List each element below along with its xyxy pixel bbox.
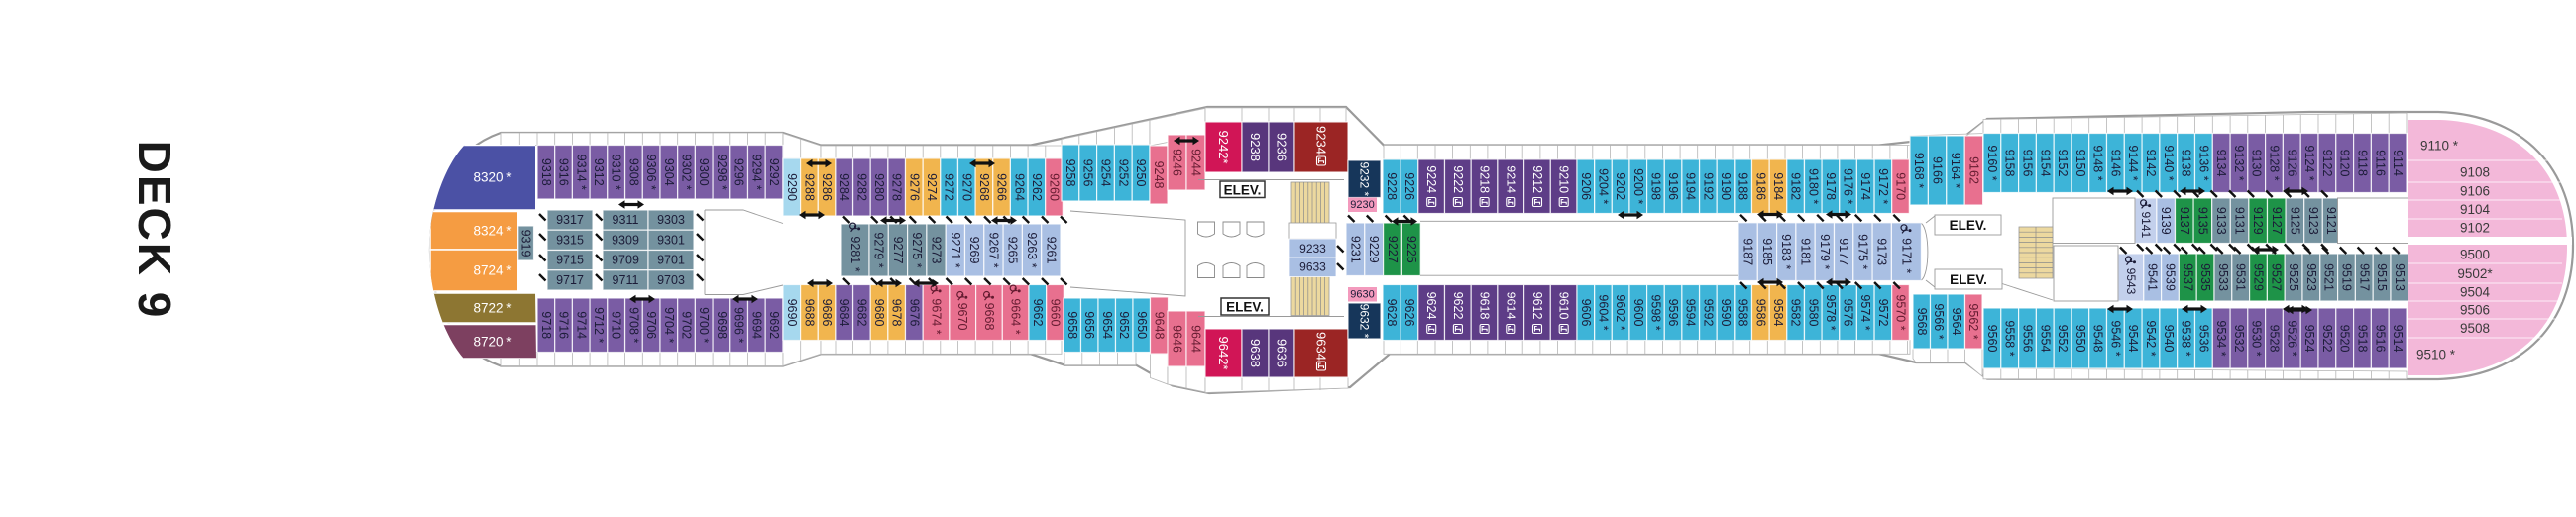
svg-text:9268: 9268 — [977, 173, 991, 201]
svg-text:9126: 9126 — [2285, 150, 2298, 177]
svg-text:9276: 9276 — [907, 173, 921, 201]
svg-text:9716: 9716 — [557, 311, 571, 339]
svg-text:9530 *: 9530 * — [2250, 320, 2264, 356]
svg-text:9168 *: 9168 * — [1912, 153, 1926, 188]
svg-text:9174: 9174 — [1858, 172, 1872, 200]
svg-text:9568: 9568 — [1915, 308, 1929, 336]
svg-text:9516: 9516 — [2373, 325, 2387, 353]
svg-text:9317: 9317 — [556, 213, 584, 227]
svg-text:9684: 9684 — [838, 299, 851, 327]
svg-text:9179 *: 9179 * — [1818, 234, 1832, 269]
svg-text:9543: 9543 — [2124, 268, 2138, 295]
svg-text:9562 *: 9562 * — [1966, 303, 1980, 339]
svg-text:9123: 9123 — [2306, 207, 2320, 235]
svg-text:9290: 9290 — [785, 173, 799, 201]
svg-text:9525: 9525 — [2287, 263, 2300, 291]
svg-text:9198: 9198 — [1648, 172, 1662, 200]
svg-text:9517: 9517 — [2357, 263, 2371, 291]
svg-text:9626: 9626 — [1402, 299, 1416, 327]
svg-text:9600: 9600 — [1631, 299, 1645, 327]
svg-text:9304: 9304 — [662, 158, 676, 186]
svg-text:9566 *: 9566 * — [1932, 303, 1946, 339]
svg-text:9134: 9134 — [2214, 150, 2228, 177]
svg-text:9680: 9680 — [872, 299, 886, 327]
svg-text:9546 *: 9546 * — [2108, 320, 2122, 356]
svg-text:9192: 9192 — [1701, 172, 1715, 200]
svg-text:9712 *: 9712 * — [592, 307, 606, 343]
svg-text:9162: 9162 — [1966, 156, 1980, 184]
svg-text:9660: 9660 — [1049, 299, 1063, 327]
svg-text:9118: 9118 — [2356, 150, 2370, 176]
svg-text:9132 *: 9132 * — [2232, 145, 2246, 180]
svg-text:9636: 9636 — [1275, 339, 1289, 367]
svg-text:9246: 9246 — [1171, 149, 1184, 176]
svg-text:9711: 9711 — [613, 273, 639, 287]
svg-text:9148 *: 9148 * — [2091, 145, 2105, 180]
svg-text:9710: 9710 — [610, 311, 623, 339]
svg-text:9303: 9303 — [657, 213, 685, 227]
svg-text:9182: 9182 — [1789, 172, 1803, 200]
svg-text:9266: 9266 — [995, 173, 1009, 201]
svg-text:9552: 9552 — [2056, 325, 2070, 353]
svg-text:8320 *: 8320 * — [473, 170, 512, 185]
svg-text:9718: 9718 — [539, 311, 553, 339]
svg-text:9527: 9527 — [2269, 263, 2283, 291]
svg-text:9703: 9703 — [657, 273, 685, 287]
svg-text:9708 *: 9708 * — [626, 307, 640, 343]
svg-text:9632 *: 9632 * — [1358, 304, 1372, 339]
svg-text:9200 *: 9200 * — [1631, 168, 1645, 204]
svg-text:ELEV.: ELEV. — [1226, 300, 1264, 315]
svg-text:9122: 9122 — [2320, 150, 2334, 177]
svg-text:9520: 9520 — [2338, 325, 2352, 353]
svg-text:9296: 9296 — [732, 158, 746, 186]
svg-text:9160 *: 9160 * — [1985, 145, 1999, 180]
svg-text:9284: 9284 — [838, 173, 851, 201]
svg-text:9614: 9614 — [1504, 292, 1517, 320]
svg-text:9281 *: 9281 * — [848, 236, 862, 271]
svg-text:9136 *: 9136 * — [2196, 145, 2210, 180]
svg-text:9222: 9222 — [1451, 165, 1465, 193]
svg-text:9668: 9668 — [982, 303, 996, 331]
svg-text:9628: 9628 — [1385, 299, 1399, 327]
svg-text:9142: 9142 — [2144, 150, 2158, 177]
svg-text:9196: 9196 — [1666, 172, 1680, 200]
svg-text:9538 *: 9538 * — [2180, 320, 2193, 356]
svg-text:9144 *: 9144 * — [2126, 145, 2140, 180]
svg-text:9306 *: 9306 * — [644, 155, 658, 190]
svg-text:9630: 9630 — [1350, 288, 1374, 300]
svg-text:9294 *: 9294 * — [749, 155, 763, 190]
svg-text:9500: 9500 — [2460, 248, 2490, 262]
svg-text:9688: 9688 — [803, 299, 817, 327]
svg-text:8724 *: 8724 * — [473, 263, 512, 278]
svg-text:9301: 9301 — [657, 233, 685, 247]
svg-text:9275 *: 9275 * — [910, 232, 924, 267]
svg-text:9131: 9131 — [2233, 207, 2247, 235]
svg-text:9298 *: 9298 * — [715, 155, 728, 190]
svg-text:9706: 9706 — [644, 311, 658, 339]
svg-text:9258: 9258 — [1064, 159, 1077, 187]
svg-text:9212: 9212 — [1530, 165, 1544, 193]
svg-text:9311: 9311 — [613, 213, 639, 227]
svg-text:9588: 9588 — [1736, 299, 1750, 327]
svg-text:9274: 9274 — [925, 173, 939, 201]
svg-text:9226: 9226 — [1402, 172, 1416, 200]
svg-text:9265: 9265 — [1006, 237, 1020, 264]
svg-text:9256: 9256 — [1081, 159, 1095, 187]
svg-text:9140 *: 9140 * — [2162, 145, 2176, 180]
svg-text:9318: 9318 — [539, 158, 553, 186]
svg-text:9514: 9514 — [2391, 325, 2405, 353]
svg-text:9190: 9190 — [1719, 172, 1733, 200]
svg-text:8720 *: 8720 * — [473, 334, 512, 349]
svg-text:9286: 9286 — [820, 173, 834, 201]
svg-text:9236: 9236 — [1275, 133, 1289, 161]
svg-text:9602 *: 9602 * — [1614, 294, 1627, 330]
svg-text:9676: 9676 — [907, 299, 921, 327]
svg-text:9506: 9506 — [2460, 303, 2490, 318]
svg-text:9662: 9662 — [1031, 299, 1045, 327]
svg-text:9714: 9714 — [574, 311, 588, 339]
svg-text:9129: 9129 — [2251, 207, 2265, 235]
svg-text:9185: 9185 — [1760, 238, 1774, 265]
svg-text:9202: 9202 — [1614, 172, 1627, 200]
svg-text:9282: 9282 — [854, 173, 868, 201]
svg-text:9316: 9316 — [557, 158, 571, 186]
svg-text:9177: 9177 — [1837, 238, 1850, 265]
svg-text:9232 *: 9232 * — [1358, 161, 1372, 196]
svg-text:9576: 9576 — [1842, 299, 1855, 327]
svg-text:9582: 9582 — [1789, 299, 1803, 327]
svg-text:9692: 9692 — [767, 311, 781, 339]
svg-text:9210: 9210 — [1557, 165, 1571, 193]
svg-text:9264: 9264 — [1012, 173, 1026, 201]
svg-text:9580: 9580 — [1806, 299, 1820, 327]
svg-text:9717: 9717 — [556, 273, 584, 287]
svg-text:DECK 9: DECK 9 — [129, 141, 180, 320]
svg-text:9271 *: 9271 * — [949, 232, 962, 267]
svg-text:9570 *: 9570 * — [1894, 294, 1908, 330]
svg-text:9510 *: 9510 * — [2416, 348, 2456, 362]
svg-text:9586: 9586 — [1753, 299, 1767, 327]
svg-text:9292: 9292 — [767, 158, 781, 186]
svg-text:9242*: 9242* — [1216, 131, 1231, 164]
svg-text:9319: 9319 — [519, 230, 533, 258]
svg-text:9650: 9650 — [1135, 311, 1149, 339]
svg-text:9248: 9248 — [1152, 161, 1166, 189]
svg-text:9273: 9273 — [930, 237, 944, 264]
svg-text:9686: 9686 — [820, 299, 834, 327]
svg-text:9578 *: 9578 * — [1824, 294, 1838, 330]
svg-text:9642*: 9642* — [1216, 337, 1231, 370]
svg-text:9715: 9715 — [556, 254, 584, 267]
svg-text:9531: 9531 — [2234, 263, 2248, 291]
svg-text:9309: 9309 — [612, 233, 639, 247]
svg-text:9104: 9104 — [2460, 202, 2491, 217]
svg-text:9314 *: 9314 * — [574, 155, 588, 190]
svg-text:9564: 9564 — [1950, 308, 1963, 336]
svg-text:9230: 9230 — [1350, 199, 1374, 211]
svg-text:9125: 9125 — [2288, 207, 2301, 235]
svg-text:9137: 9137 — [2178, 207, 2191, 235]
svg-text:9233: 9233 — [1299, 242, 1326, 256]
svg-text:9502*: 9502* — [2457, 266, 2493, 281]
svg-text:9633: 9633 — [1299, 260, 1326, 274]
svg-text:9228: 9228 — [1385, 172, 1399, 200]
svg-text:9560: 9560 — [1985, 325, 1999, 353]
svg-text:9674 *: 9674 * — [930, 298, 944, 334]
svg-text:9598 *: 9598 * — [1648, 294, 1662, 330]
svg-text:9231: 9231 — [1348, 236, 1362, 263]
svg-text:9690: 9690 — [785, 299, 799, 327]
svg-text:9121: 9121 — [2324, 207, 2338, 235]
svg-text:9606: 9606 — [1579, 299, 1593, 327]
svg-text:9206: 9206 — [1579, 172, 1593, 200]
svg-text:9176 *: 9176 * — [1842, 168, 1855, 204]
svg-text:9133: 9133 — [2214, 207, 2228, 235]
svg-text:9654: 9654 — [1100, 311, 1114, 339]
svg-text:9540: 9540 — [2162, 325, 2176, 353]
svg-text:9701: 9701 — [657, 254, 685, 267]
svg-text:9518: 9518 — [2356, 325, 2370, 353]
svg-text:9574 *: 9574 * — [1858, 294, 1872, 330]
svg-text:9554: 9554 — [2038, 325, 2052, 353]
svg-text:9158: 9158 — [2003, 150, 2017, 177]
svg-text:9556: 9556 — [2021, 325, 2035, 353]
svg-text:9261: 9261 — [1044, 237, 1058, 264]
svg-text:9128 *: 9128 * — [2268, 145, 2282, 180]
svg-text:9234: 9234 — [1314, 126, 1329, 155]
svg-text:9544: 9544 — [2126, 325, 2140, 353]
svg-text:9524: 9524 — [2302, 325, 2316, 353]
svg-text:9269: 9269 — [967, 237, 981, 264]
svg-text:9548: 9548 — [2091, 325, 2105, 353]
svg-text:9172 *: 9172 * — [1876, 168, 1890, 204]
svg-text:9254: 9254 — [1099, 159, 1113, 187]
svg-text:9116: 9116 — [2373, 150, 2387, 176]
svg-text:9110 *: 9110 * — [2420, 139, 2459, 154]
svg-text:ELEV.: ELEV. — [1950, 272, 1987, 287]
svg-text:9532: 9532 — [2232, 325, 2246, 353]
svg-text:9263 *: 9263 * — [1025, 232, 1039, 267]
svg-text:9658: 9658 — [1065, 311, 1079, 339]
svg-text:9175 *: 9175 * — [1855, 234, 1869, 269]
svg-text:8722 *: 8722 * — [473, 301, 512, 316]
svg-text:9188: 9188 — [1736, 172, 1750, 200]
svg-text:9638: 9638 — [1248, 339, 1263, 367]
svg-text:9533: 9533 — [2216, 263, 2230, 291]
svg-text:9260: 9260 — [1048, 173, 1062, 201]
svg-text:ELEV.: ELEV. — [1950, 218, 1987, 233]
svg-text:9225: 9225 — [1404, 236, 1418, 263]
svg-text:9194: 9194 — [1684, 172, 1698, 200]
svg-text:9127: 9127 — [2270, 207, 2284, 235]
svg-text:9536: 9536 — [2196, 325, 2210, 353]
svg-text:9702: 9702 — [680, 311, 694, 339]
svg-text:9696 *: 9696 * — [732, 307, 746, 343]
svg-text:9519: 9519 — [2340, 263, 2354, 291]
svg-text:9141: 9141 — [2139, 211, 2153, 238]
svg-text:9181: 9181 — [1799, 238, 1813, 265]
svg-text:9183 *: 9183 * — [1779, 234, 1793, 269]
svg-text:9709: 9709 — [612, 254, 639, 267]
svg-text:9150: 9150 — [2073, 150, 2087, 177]
svg-text:9272: 9272 — [943, 173, 956, 201]
svg-text:9186: 9186 — [1753, 172, 1767, 200]
svg-text:9644: 9644 — [1189, 325, 1203, 353]
svg-text:9154: 9154 — [2038, 150, 2052, 177]
svg-text:9184: 9184 — [1771, 172, 1785, 200]
svg-text:8324 *: 8324 * — [473, 223, 512, 238]
svg-text:9529: 9529 — [2252, 263, 2266, 291]
svg-text:9523: 9523 — [2304, 263, 2318, 291]
svg-text:9252: 9252 — [1116, 159, 1130, 187]
svg-text:9539: 9539 — [2164, 263, 2178, 291]
svg-text:9310 *: 9310 * — [610, 155, 623, 190]
svg-text:9315: 9315 — [556, 233, 584, 247]
svg-text:9682: 9682 — [854, 299, 868, 327]
svg-text:9288: 9288 — [803, 173, 817, 201]
svg-text:9156: 9156 — [2021, 150, 2035, 177]
svg-text:9550: 9550 — [2073, 325, 2087, 353]
svg-text:9152: 9152 — [2056, 150, 2070, 177]
svg-text:9227: 9227 — [1386, 236, 1400, 263]
svg-text:9648: 9648 — [1153, 312, 1167, 340]
svg-text:9652: 9652 — [1117, 311, 1131, 339]
svg-text:9504: 9504 — [2460, 285, 2491, 300]
svg-text:9604 *: 9604 * — [1597, 294, 1611, 330]
svg-text:9300: 9300 — [697, 158, 711, 186]
svg-text:9204 *: 9204 * — [1597, 168, 1611, 204]
svg-text:9622: 9622 — [1451, 292, 1465, 320]
svg-text:9229: 9229 — [1367, 236, 1381, 263]
svg-text:9526 *: 9526 * — [2285, 320, 2298, 356]
svg-text:9558 *: 9558 * — [2003, 320, 2017, 356]
svg-text:9700 *: 9700 * — [697, 307, 711, 343]
svg-text:9218: 9218 — [1478, 165, 1492, 193]
svg-text:9704 *: 9704 * — [662, 307, 676, 343]
svg-text:9178: 9178 — [1824, 172, 1838, 200]
svg-text:9572: 9572 — [1876, 299, 1890, 327]
svg-text:9513: 9513 — [2393, 263, 2407, 291]
svg-text:9537: 9537 — [2181, 263, 2194, 291]
svg-text:9187: 9187 — [1741, 238, 1755, 265]
svg-text:9534 *: 9534 * — [2214, 320, 2228, 356]
svg-text:9508: 9508 — [2460, 321, 2490, 336]
svg-text:9262: 9262 — [1030, 173, 1044, 201]
svg-text:9664 *: 9664 * — [1009, 298, 1023, 334]
svg-text:9646: 9646 — [1171, 325, 1184, 353]
svg-text:9135: 9135 — [2195, 207, 2209, 235]
svg-text:9624: 9624 — [1424, 292, 1438, 320]
svg-text:9279 *: 9279 * — [872, 232, 886, 267]
svg-text:9618: 9618 — [1478, 292, 1492, 320]
svg-text:9522: 9522 — [2320, 325, 2334, 353]
svg-text:9238: 9238 — [1248, 133, 1263, 161]
svg-text:9612: 9612 — [1530, 292, 1544, 320]
svg-text:9120: 9120 — [2338, 150, 2352, 177]
svg-text:9312: 9312 — [592, 158, 606, 186]
svg-text:9541: 9541 — [2146, 263, 2160, 291]
svg-text:9308: 9308 — [626, 158, 640, 186]
svg-text:9244: 9244 — [1189, 149, 1203, 176]
svg-text:9656: 9656 — [1082, 311, 1096, 339]
svg-text:9610: 9610 — [1557, 292, 1571, 320]
svg-text:9224: 9224 — [1424, 165, 1438, 193]
svg-text:9102: 9102 — [2460, 221, 2490, 236]
svg-text:9302 *: 9302 * — [680, 155, 694, 190]
svg-text:9542 *: 9542 * — [2144, 320, 2158, 356]
svg-text:9171 *: 9171 * — [1899, 238, 1913, 273]
svg-text:9515: 9515 — [2375, 263, 2389, 291]
svg-text:9108: 9108 — [2460, 165, 2490, 180]
svg-text:9170: 9170 — [1894, 172, 1908, 200]
svg-text:9592: 9592 — [1701, 299, 1715, 327]
svg-text:9670: 9670 — [955, 303, 969, 331]
svg-text:9278: 9278 — [890, 173, 904, 201]
svg-text:9250: 9250 — [1134, 159, 1148, 187]
svg-text:9698: 9698 — [715, 311, 728, 339]
svg-text:9114: 9114 — [2391, 150, 2405, 176]
svg-text:9535: 9535 — [2198, 263, 2212, 291]
svg-text:9106: 9106 — [2460, 184, 2490, 199]
svg-text:9267 *: 9267 * — [986, 232, 1000, 267]
svg-text:9130: 9130 — [2250, 150, 2264, 177]
svg-text:9280: 9280 — [872, 173, 886, 201]
svg-text:9124 *: 9124 * — [2302, 145, 2316, 180]
svg-text:9528: 9528 — [2268, 325, 2282, 353]
svg-text:9694: 9694 — [749, 311, 763, 339]
svg-text:9146: 9146 — [2108, 150, 2122, 177]
svg-text:9166: 9166 — [1931, 156, 1945, 184]
svg-text:9270: 9270 — [959, 173, 973, 201]
svg-text:9596: 9596 — [1666, 299, 1680, 327]
svg-text:9521: 9521 — [2322, 263, 2336, 291]
svg-text:9590: 9590 — [1719, 299, 1733, 327]
svg-text:9594: 9594 — [1684, 299, 1698, 327]
svg-text:9180 *: 9180 * — [1806, 168, 1820, 204]
svg-text:9139: 9139 — [2159, 207, 2173, 235]
svg-text:9584: 9584 — [1771, 299, 1785, 327]
svg-text:9634: 9634 — [1314, 332, 1329, 361]
svg-text:9277: 9277 — [891, 237, 905, 264]
svg-text:9164 *: 9164 * — [1949, 153, 1962, 188]
svg-text:9678: 9678 — [890, 299, 904, 327]
svg-text:ELEV.: ELEV. — [1224, 182, 1262, 197]
svg-text:9214: 9214 — [1504, 165, 1517, 193]
svg-text:9138: 9138 — [2180, 150, 2193, 177]
svg-text:9173: 9173 — [1875, 238, 1889, 265]
